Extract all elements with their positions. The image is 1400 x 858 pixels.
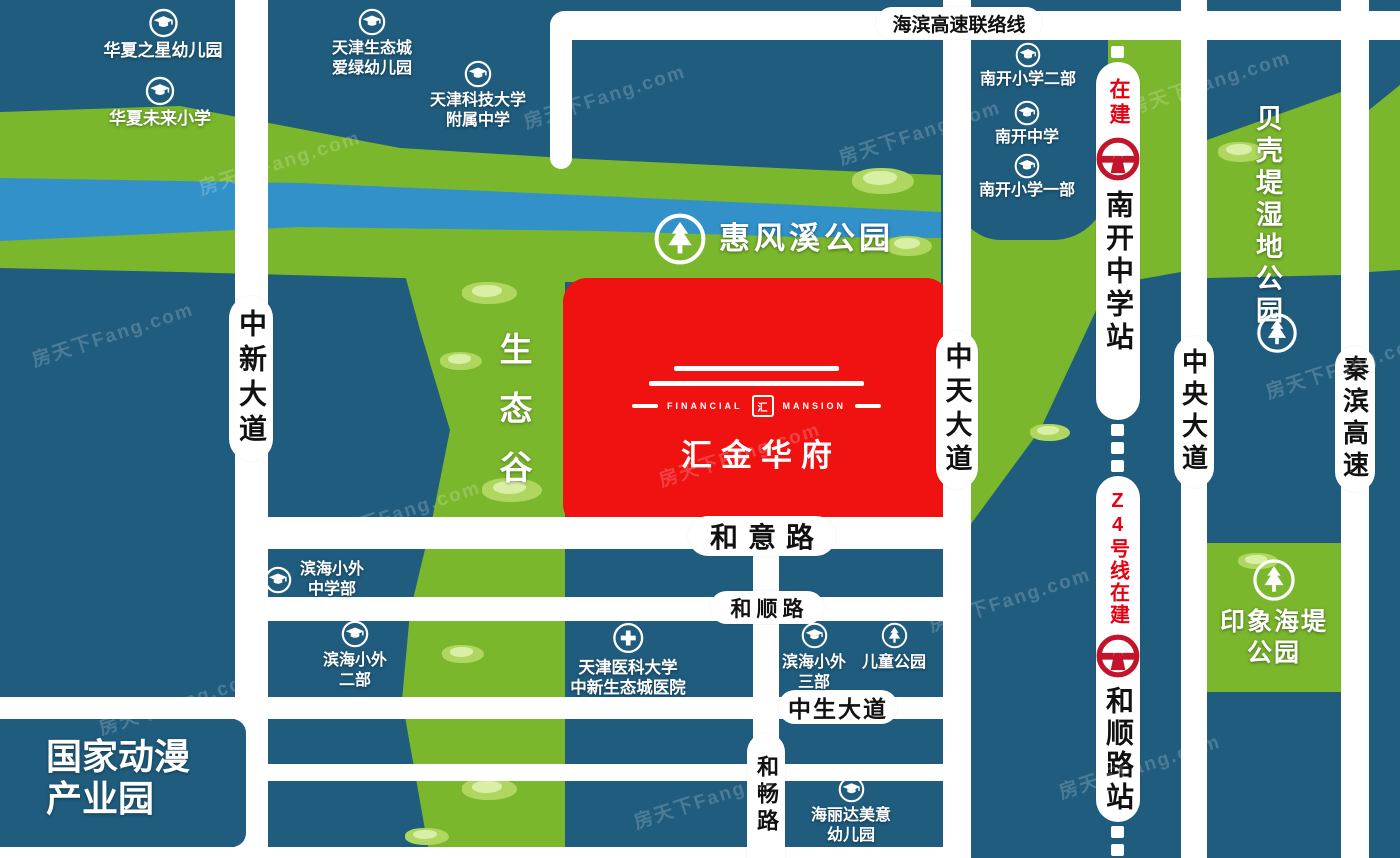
brand-decor-bar xyxy=(649,381,864,386)
poi-ertong-park: 儿童公园 xyxy=(862,622,926,673)
poi-hailida-kindergarten: 海丽达美意 幼儿园 xyxy=(811,776,891,845)
brand-decor-bar xyxy=(855,404,881,408)
metro-line-dash xyxy=(1111,442,1124,454)
pine-tree-icon xyxy=(653,212,707,266)
poi-binhai-foreign-dept-3: 滨海小外 三部 xyxy=(782,622,846,692)
brand-decor-bar xyxy=(632,404,658,408)
poi-eco-city-hospital: 天津医科大学 中新生态城医院 xyxy=(570,622,686,698)
poi-aiyv-kindergarten: 天津生态城 爱绿幼儿园 xyxy=(332,8,412,78)
brand-en-right: MANSION xyxy=(783,401,847,411)
project-location-map: 海滨高速联络线 中新大道 中天大道 中央大道 秦滨高速 和意路 和顺路 中生大道… xyxy=(0,0,1400,858)
poi-yinxiang-haiti-park: 印象海堤 公园 xyxy=(1220,558,1328,668)
poi-binhai-foreign-dept-2: 滨海小外 二部 xyxy=(323,620,387,690)
watermark: 房天下Fang.com xyxy=(28,295,197,373)
brand-en-left: FINANCIAL xyxy=(667,401,743,411)
metro-line-dash xyxy=(1111,424,1124,436)
medical-cross-icon xyxy=(612,622,644,654)
graduation-cap-icon xyxy=(1015,42,1041,68)
poi-keji-affiliated-middle: 天津科技大学 附属中学 xyxy=(430,60,526,130)
graduation-cap-icon xyxy=(464,60,492,88)
poi-huaxia-future-primary: 华夏未来小学 xyxy=(109,76,211,130)
road-label-haibin: 海滨高速联络线 xyxy=(876,7,1042,39)
metro-line-dash xyxy=(1111,826,1124,838)
graduation-cap-icon xyxy=(800,622,827,649)
bush xyxy=(462,282,517,304)
graduation-cap-icon xyxy=(358,8,386,36)
bush xyxy=(442,645,484,663)
tianjin-metro-logo-icon xyxy=(1095,633,1141,679)
graduation-cap-icon xyxy=(1014,153,1040,179)
graduation-cap-icon xyxy=(148,8,178,38)
metro-line-dash xyxy=(1111,28,1124,40)
poi-beiketi-wetland-park: 贝壳堤湿地公园 xyxy=(1248,104,1287,328)
brand-decor-bar xyxy=(674,366,839,371)
poi-nankai-middle: 南开中学 xyxy=(995,100,1059,148)
graduation-cap-icon xyxy=(837,776,864,803)
metro-line-dash xyxy=(1111,46,1124,58)
road-label-heshun: 和顺路 xyxy=(710,591,824,624)
watermark: 房天下Fang.com xyxy=(520,57,689,135)
road-bottom-edge xyxy=(0,847,956,858)
road-heshun xyxy=(252,597,956,621)
poi-nankai-primary-1: 南开小学一部 xyxy=(979,153,1075,201)
poi-national-anime-park: 国家动漫 产业园 xyxy=(46,736,190,821)
graduation-cap-icon xyxy=(1014,100,1040,126)
graduation-cap-icon xyxy=(264,566,292,594)
property-brand: FINANCIAL 汇 MANSION 汇金华府 xyxy=(563,278,950,528)
road-label-hechang: 和畅路 xyxy=(747,733,785,858)
bush xyxy=(462,778,517,800)
graduation-cap-icon xyxy=(341,620,369,648)
road-label-zhongsheng: 中生大道 xyxy=(778,690,898,724)
metro-line-dash xyxy=(1111,460,1124,472)
poi-nankai-primary-2: 南开小学二部 xyxy=(980,42,1076,90)
pine-tree-icon xyxy=(880,622,907,649)
area-label-shengtaigu: 生态谷 xyxy=(489,332,537,509)
metro-station-nankai: 在建 南开中学站 xyxy=(1096,62,1140,420)
bush xyxy=(1030,424,1070,441)
green-area-far-east xyxy=(1369,80,1400,272)
bush xyxy=(852,168,914,194)
pine-tree-icon xyxy=(1252,558,1296,602)
bush xyxy=(440,352,482,370)
graduation-cap-icon xyxy=(145,76,175,106)
road-label-qinbin: 秦滨高速 xyxy=(1335,346,1375,492)
poi-huifengxi-park: 惠风溪公园 xyxy=(653,212,894,266)
bush xyxy=(405,828,449,845)
road-label-zhongyang: 中央大道 xyxy=(1174,336,1214,488)
metro-line-dash xyxy=(1111,844,1124,856)
poi-huaxia-star-kindergarten: 华夏之星幼儿园 xyxy=(104,8,223,62)
brand-seal-icon: 汇 xyxy=(752,395,774,417)
pine-tree-icon xyxy=(1256,312,1298,354)
tianjin-metro-logo-icon xyxy=(1095,136,1141,182)
property-name: 汇金华府 xyxy=(672,430,841,475)
road-label-zhongxin: 中新大道 xyxy=(229,296,273,461)
metro-station-heshunlu: Z4号线在建 和顺路站 xyxy=(1096,476,1140,822)
poi-binhai-foreign-middle-dept: 滨海小外 中学部 xyxy=(264,560,364,599)
